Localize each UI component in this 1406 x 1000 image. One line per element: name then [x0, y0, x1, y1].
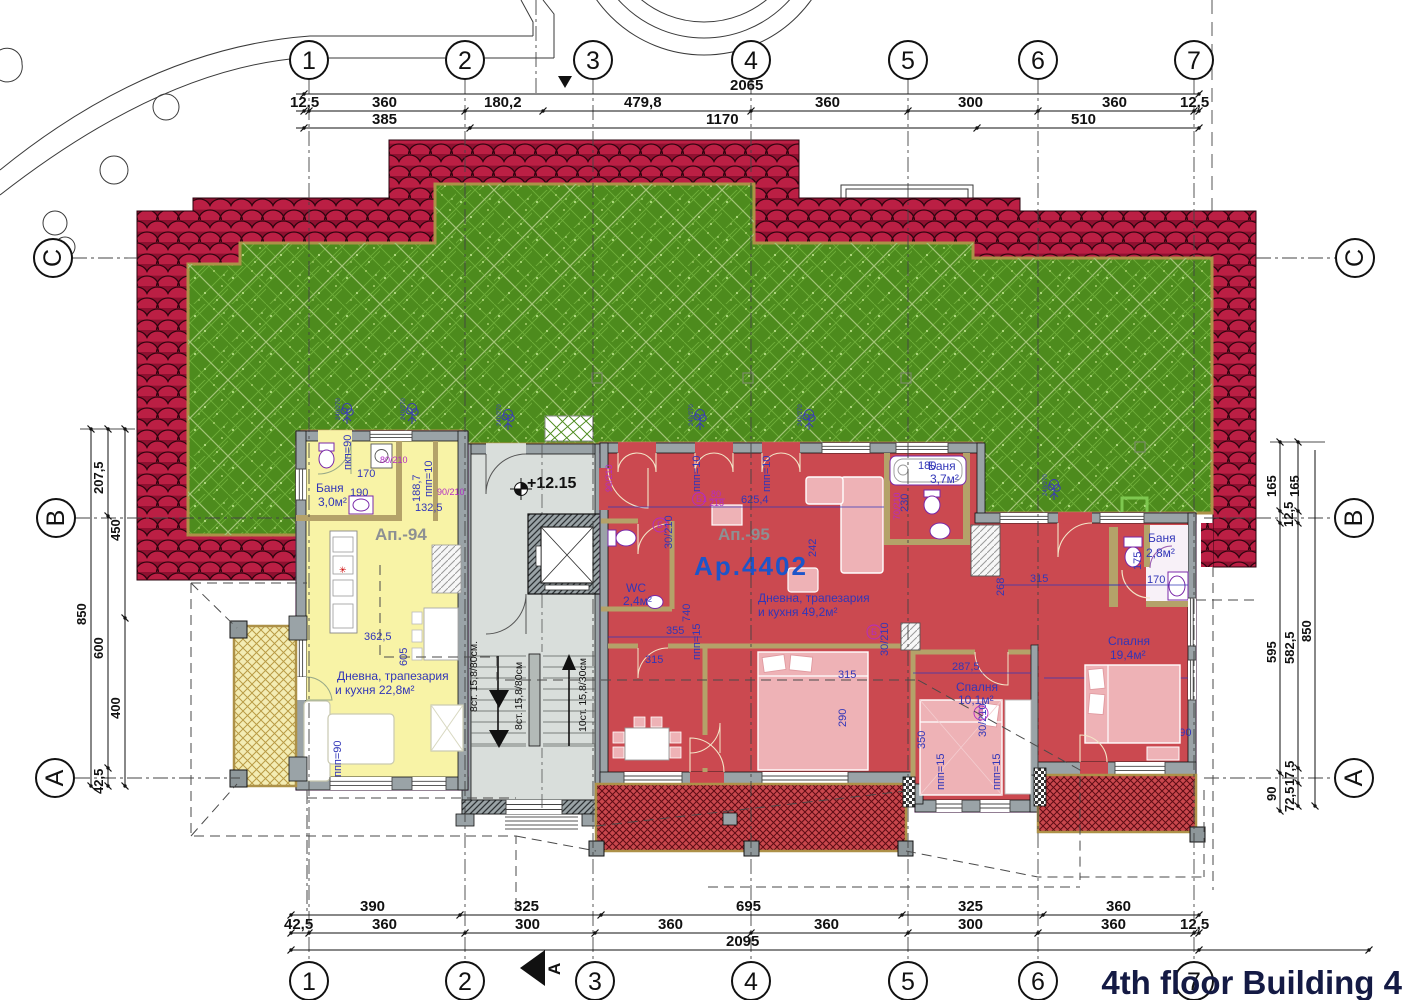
svg-text:300: 300 — [515, 916, 540, 933]
svg-text:70/210: 70/210 — [892, 492, 902, 520]
svg-text:90/210: 90/210 — [604, 464, 614, 492]
svg-text:ппп=10: ппп=10 — [761, 455, 773, 492]
svg-text:12,5: 12,5 — [1180, 94, 1209, 111]
svg-text:132,5: 132,5 — [415, 502, 443, 514]
svg-text:165: 165 — [1287, 475, 1302, 497]
svg-text:ппп=90: ппп=90 — [332, 740, 344, 777]
svg-text:290: 290 — [837, 709, 849, 727]
svg-text:17,5: 17,5 — [1282, 761, 1297, 786]
svg-text:350: 350 — [916, 731, 928, 749]
svg-text:и кухня 49,2м²: и кухня 49,2м² — [758, 605, 837, 619]
svg-text:Б1: Б1 — [696, 494, 707, 504]
svg-text:3,7м²: 3,7м² — [930, 472, 959, 486]
svg-text:188,7: 188,7 — [411, 474, 423, 502]
svg-text:5: 5 — [901, 968, 915, 996]
svg-text:600: 600 — [91, 637, 106, 659]
svg-text:30/210: 30/210 — [879, 622, 891, 656]
svg-text:C: C — [1341, 249, 1369, 267]
svg-text:90/210: 90/210 — [437, 487, 465, 497]
svg-text:42,5: 42,5 — [91, 769, 106, 794]
svg-text:4: 4 — [744, 968, 758, 996]
svg-text:175: 175 — [1132, 552, 1144, 570]
svg-text:625,4: 625,4 — [741, 494, 769, 506]
svg-text:C: C — [39, 249, 67, 267]
svg-text:315: 315 — [645, 654, 663, 666]
svg-text:3: 3 — [586, 47, 600, 75]
svg-text:Баня: Баня — [1148, 531, 1176, 545]
svg-text:2: 2 — [458, 47, 472, 75]
svg-text:B: B — [1340, 510, 1368, 527]
svg-text:1: 1 — [302, 968, 316, 996]
svg-text:268: 268 — [995, 578, 1007, 596]
svg-text:12,5: 12,5 — [1281, 502, 1296, 527]
svg-text:595: 595 — [1264, 641, 1279, 663]
svg-text:315: 315 — [1030, 573, 1048, 585]
svg-text:6: 6 — [1031, 47, 1045, 75]
svg-text:Дневна, трапезария: Дневна, трапезария — [758, 591, 870, 605]
svg-text:180,2: 180,2 — [484, 94, 522, 111]
svg-text:8ст. 15,8/80см.: 8ст. 15,8/80см. — [468, 641, 480, 712]
svg-text:360: 360 — [815, 94, 840, 111]
svg-text:287,5: 287,5 — [952, 661, 980, 673]
svg-text:ппп=15: ппп=15 — [691, 623, 703, 660]
svg-text:180: 180 — [918, 460, 936, 472]
svg-text:42,5: 42,5 — [284, 916, 313, 933]
svg-text:10ст. 15,8/30см: 10ст. 15,8/30см — [577, 658, 589, 732]
svg-text:2095: 2095 — [726, 933, 759, 950]
svg-text:362,5: 362,5 — [364, 631, 392, 643]
svg-text:4th floor Building 4: 4th floor Building 4 — [1101, 964, 1402, 1000]
svg-text:510: 510 — [1071, 111, 1096, 128]
svg-text:B: B — [42, 510, 70, 527]
svg-text:1170: 1170 — [706, 111, 739, 128]
svg-text:450: 450 — [108, 519, 123, 541]
svg-text:218: 218 — [709, 498, 724, 508]
svg-text:190: 190 — [350, 487, 368, 499]
svg-text:325: 325 — [514, 898, 539, 915]
svg-text:30/210: 30/210 — [663, 515, 675, 549]
svg-text:Б: Б — [978, 708, 984, 718]
svg-text:WC: WC — [626, 581, 646, 595]
svg-text:315: 315 — [838, 669, 856, 681]
svg-text:3,0м²: 3,0м² — [318, 495, 347, 509]
svg-text:80/210: 80/210 — [380, 455, 408, 465]
svg-text:A: A — [1340, 769, 1368, 786]
svg-text:740: 740 — [681, 604, 693, 622]
svg-text:+12.15: +12.15 — [527, 475, 576, 492]
svg-text:ппп=10: ппп=10 — [423, 460, 435, 497]
svg-text:72,5: 72,5 — [1282, 787, 1297, 812]
svg-text:90: 90 — [1264, 787, 1279, 801]
svg-text:242: 242 — [807, 539, 819, 557]
svg-text:✳: ✳ — [339, 565, 347, 575]
svg-text:360: 360 — [658, 916, 683, 933]
svg-text:390: 390 — [360, 898, 385, 915]
svg-text:А: А — [545, 963, 564, 975]
svg-text:165: 165 — [1264, 475, 1279, 497]
svg-text:360: 360 — [1102, 94, 1127, 111]
svg-text:207,5: 207,5 — [91, 461, 106, 494]
svg-text:2: 2 — [458, 968, 472, 996]
svg-text:ппп=15: ппп=15 — [935, 753, 947, 790]
svg-text:3: 3 — [588, 968, 602, 996]
svg-text:4: 4 — [744, 47, 758, 75]
svg-text:385: 385 — [372, 111, 397, 128]
svg-text:355: 355 — [666, 625, 684, 637]
svg-text:850: 850 — [74, 603, 89, 625]
svg-text:360: 360 — [1101, 916, 1126, 933]
svg-text:360: 360 — [372, 94, 397, 111]
svg-text:5: 5 — [901, 47, 915, 75]
svg-text:Ап.-94: Ап.-94 — [375, 525, 427, 544]
svg-text:479,8: 479,8 — [624, 94, 662, 111]
svg-text:850: 850 — [1299, 620, 1314, 642]
svg-text:Спалня: Спалня — [956, 680, 998, 694]
svg-text:ппп=15: ппп=15 — [991, 753, 1003, 790]
svg-text:170: 170 — [357, 468, 375, 480]
svg-text:325: 325 — [958, 898, 983, 915]
svg-text:и кухня 22,8м²: и кухня 22,8м² — [335, 683, 414, 697]
svg-text:Баня: Баня — [316, 481, 344, 495]
svg-text:360: 360 — [1106, 898, 1131, 915]
svg-text:A: A — [41, 769, 69, 786]
svg-text:пкп=90: пкп=90 — [342, 435, 354, 470]
svg-text:Ap.4402: Ap.4402 — [694, 551, 806, 581]
svg-text:Дневна, трапезария: Дневна, трапезария — [337, 669, 449, 683]
svg-text:2065: 2065 — [730, 77, 763, 94]
svg-text:300: 300 — [958, 916, 983, 933]
svg-text:ппп=10: ппп=10 — [691, 455, 703, 492]
svg-text:6: 6 — [1031, 968, 1045, 996]
svg-text:8ст. 15,8/80см: 8ст. 15,8/80см — [513, 662, 525, 730]
svg-text:7: 7 — [1187, 47, 1201, 75]
svg-text:12,5: 12,5 — [1180, 916, 1209, 933]
svg-text:2,4м²: 2,4м² — [623, 594, 652, 608]
svg-text:400: 400 — [108, 697, 123, 719]
svg-text:Спалня: Спалня — [1108, 634, 1150, 648]
svg-text:1: 1 — [302, 47, 316, 75]
svg-text:Ап.-95: Ап.-95 — [718, 525, 770, 544]
svg-text:19,4м²: 19,4м² — [1110, 648, 1146, 662]
svg-text:170: 170 — [1147, 574, 1165, 586]
svg-text:300: 300 — [958, 94, 983, 111]
svg-text:360: 360 — [814, 916, 839, 933]
svg-text:582,5: 582,5 — [1282, 631, 1297, 664]
svg-text:12,5: 12,5 — [290, 94, 319, 111]
svg-text:695: 695 — [736, 898, 761, 915]
svg-text:Б: Б — [871, 627, 877, 637]
svg-text:360: 360 — [372, 916, 397, 933]
svg-text:2,8м²: 2,8м² — [1146, 546, 1175, 560]
